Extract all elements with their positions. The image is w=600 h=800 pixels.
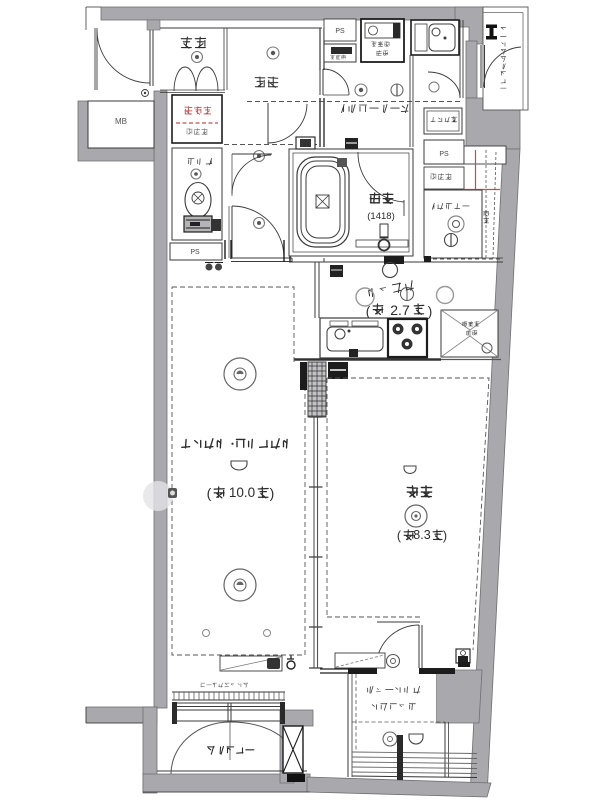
svg-text:PS: PS — [190, 249, 200, 256]
svg-text:MB: MB — [115, 117, 127, 126]
svg-text:(: ( — [207, 485, 212, 501]
svg-text:): ) — [443, 529, 447, 543]
svg-text:PS: PS — [335, 28, 345, 35]
svg-text:8.3: 8.3 — [413, 528, 430, 542]
svg-text:): ) — [270, 485, 275, 501]
svg-text:PS: PS — [439, 151, 449, 158]
svg-text:10.0: 10.0 — [229, 485, 255, 500]
svg-text:(1418): (1418) — [367, 211, 394, 222]
svg-text:2.7: 2.7 — [390, 302, 410, 318]
svg-text:): ) — [428, 304, 433, 319]
